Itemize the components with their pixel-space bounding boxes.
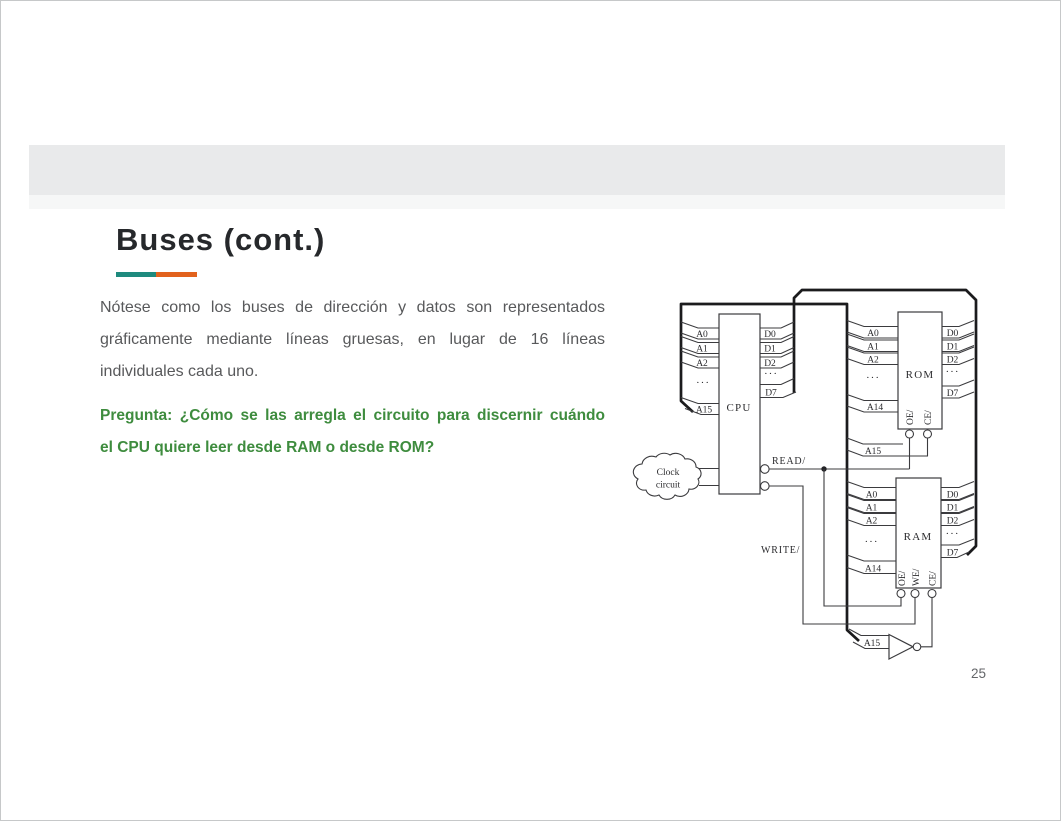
- header-band: [29, 145, 1005, 195]
- ram-data-label: D2: [947, 517, 959, 527]
- read-signal-label: READ/: [772, 456, 806, 467]
- ram-ctrl-label: WE/: [912, 568, 922, 586]
- rom-addr-label: A1: [867, 343, 879, 353]
- rom-addr-ellipsis: ···: [866, 372, 880, 384]
- rom-label: ROM: [906, 369, 935, 381]
- rom-block: ROM A0 A1 A2 ··· A14 D0 D1 D2 ··· D7 OE/…: [847, 312, 974, 469]
- page-number: 25: [971, 666, 986, 681]
- clock-label-line2: circuit: [656, 481, 681, 491]
- ram-addr-label: A2: [866, 517, 878, 527]
- rom-data-label: D0: [947, 329, 959, 339]
- read-network: READ/: [761, 456, 910, 606]
- slide-page: Buses (cont.) Nótese como los buses de d…: [0, 0, 1061, 821]
- ram-data-label: D1: [947, 504, 959, 514]
- ram-addr-ellipsis: ···: [865, 536, 879, 548]
- ram-ctrl-label: CE/: [929, 571, 939, 586]
- page-title: Buses (cont.): [116, 222, 325, 258]
- rom-data-ellipsis: ···: [946, 366, 960, 378]
- rom-data-label: D7: [947, 389, 959, 399]
- cpu-write-bubble: [761, 482, 770, 491]
- inverter-input-label: A15: [864, 639, 881, 649]
- cpu-read-bubble: [761, 465, 770, 474]
- cpu-block: CPU A0 A1 A2 ··· A15 D0 D1 D2 ··· D7: [681, 314, 796, 494]
- circuit-diagram: CPU A0 A1 A2 ··· A15 D0 D1 D2 ··· D7 ROM: [621, 271, 1021, 691]
- cpu-label: CPU: [727, 402, 752, 414]
- a15-inverter-network: A15: [849, 598, 932, 660]
- ram-block: RAM A0 A1 A2 ··· A14 D0 D1 D2 ··· D7 OE/…: [847, 478, 974, 598]
- accent-orange-segment: [156, 272, 197, 277]
- clock-circuit: Clock circuit: [633, 453, 719, 499]
- inverter-bubble: [913, 643, 921, 651]
- address-bus: [681, 304, 859, 641]
- cpu-data-label: D1: [764, 345, 776, 355]
- ram-data-label: D0: [947, 491, 959, 501]
- ram-label: RAM: [904, 531, 933, 543]
- body-line: gráficamente mediante líneas gruesas, en…: [100, 324, 605, 356]
- cpu-addr-ellipsis: ···: [696, 377, 710, 389]
- body-line: individuales cada uno.: [100, 356, 605, 388]
- ram-addr-label: A0: [866, 491, 878, 501]
- cpu-data-ellipsis: ···: [764, 368, 778, 380]
- write-signal-label: WRITE/: [761, 545, 800, 556]
- inverter-icon: [889, 635, 913, 660]
- write-network: WRITE/: [761, 482, 916, 624]
- rom-addr-label: A2: [867, 356, 879, 366]
- rom-ctrl-label: OE/: [906, 409, 916, 425]
- ram-addr-label: A1: [866, 504, 878, 514]
- clock-label-line1: Clock: [657, 468, 680, 478]
- body-line: Nótese como los buses de dirección y dat…: [100, 292, 605, 324]
- rom-a15-label: A15: [865, 447, 882, 457]
- cpu-addr-label: A1: [696, 345, 708, 355]
- cpu-addr-label: A2: [696, 359, 708, 369]
- rom-addr-label: A14: [867, 403, 884, 413]
- rom-ce-bubble: [924, 430, 932, 438]
- ram-data-ellipsis: ···: [946, 528, 960, 540]
- accent-teal-segment: [116, 272, 156, 277]
- question-line: Pregunta: ¿Cómo se las arregla el circui…: [100, 400, 605, 432]
- question-line: el CPU quiere leer desde RAM o desde ROM…: [100, 432, 605, 464]
- ram-ctrl-label: OE/: [898, 570, 908, 586]
- cpu-data-label: D0: [764, 330, 776, 340]
- rom-data-label: D1: [947, 343, 959, 353]
- rom-data-label: D2: [947, 356, 959, 366]
- header-band-shadow: [29, 195, 1005, 209]
- ram-ce-bubble: [928, 590, 936, 598]
- ram-addr-label: A14: [865, 565, 882, 575]
- question-paragraph: Pregunta: ¿Cómo se las arregla el circui…: [100, 400, 605, 464]
- cpu-addr-label: A0: [696, 330, 708, 340]
- rom-oe-bubble: [906, 430, 914, 438]
- rom-ctrl-label: CE/: [924, 410, 934, 425]
- cpu-addr-label: A15: [696, 406, 713, 416]
- ram-we-bubble: [911, 590, 919, 598]
- ram-oe-bubble: [897, 590, 905, 598]
- rom-addr-label: A0: [867, 329, 879, 339]
- ram-data-label: D7: [947, 549, 959, 559]
- rom-a15-wire: [847, 438, 928, 456]
- body-paragraph: Nótese como los buses de dirección y dat…: [100, 292, 605, 388]
- title-accent-rule: [116, 272, 197, 277]
- cpu-data-label: D7: [765, 389, 777, 399]
